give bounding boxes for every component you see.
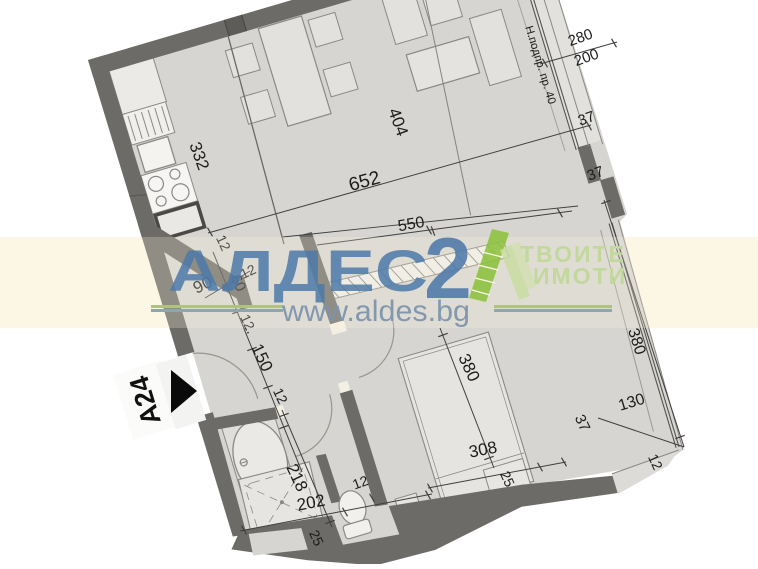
svg-text:ИМОТИ: ИМОТИ bbox=[533, 263, 627, 289]
svg-text:www.aldes.bg: www.aldes.bg bbox=[281, 295, 470, 328]
